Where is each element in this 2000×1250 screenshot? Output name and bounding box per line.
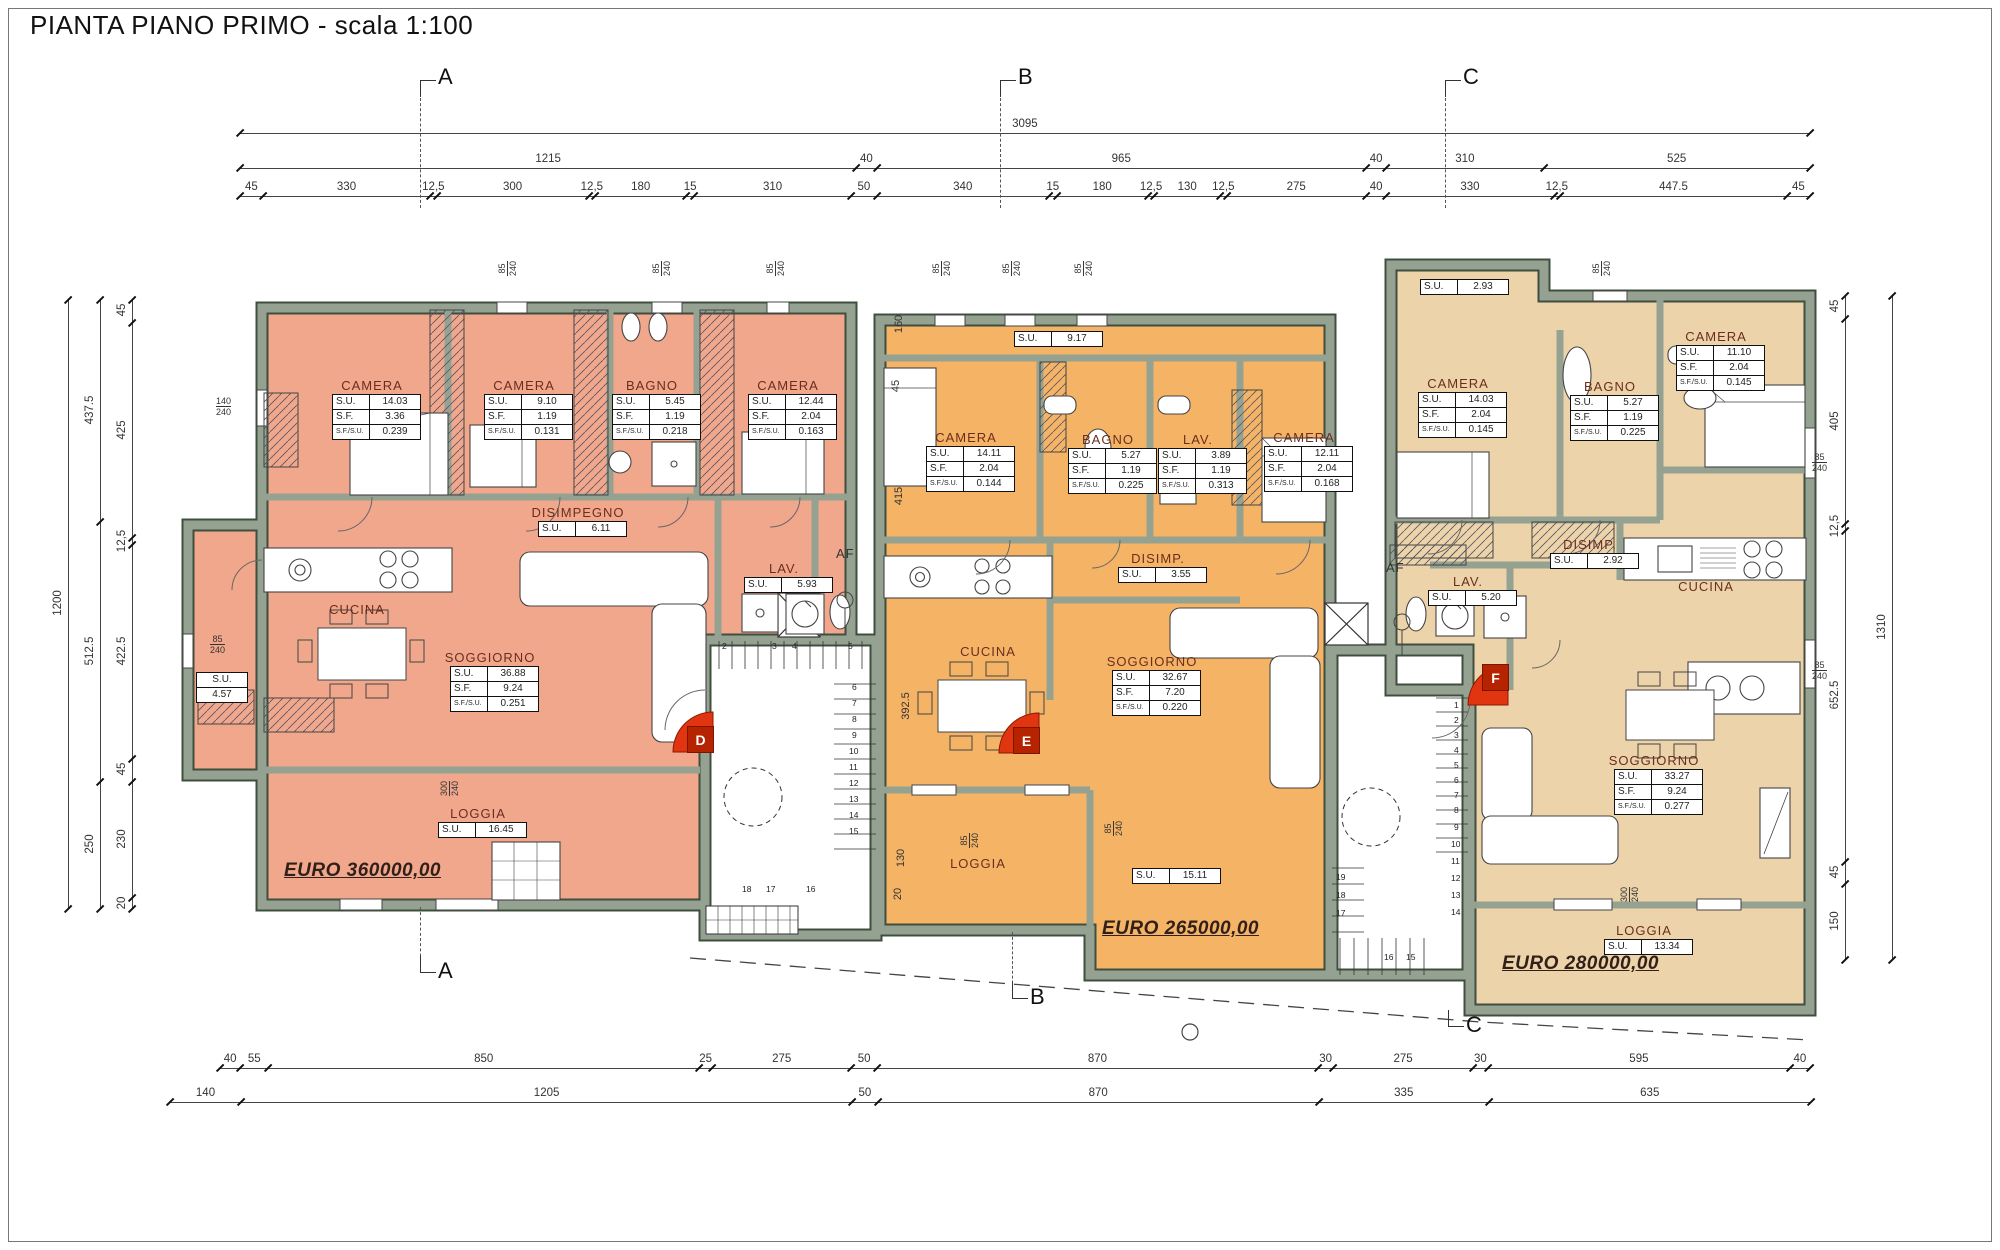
dim-label: 1200 [52, 561, 64, 645]
stair-step-number: 12 [849, 778, 858, 788]
room-name: LAV. [1398, 574, 1538, 589]
section-bracket [1445, 80, 1461, 97]
stair-step-number: 11 [849, 762, 858, 772]
stair-step-number: 13 [849, 794, 858, 804]
dim-line [170, 1102, 1811, 1103]
dim-label: 12,5 [1188, 181, 1258, 193]
section-bracket [420, 80, 436, 97]
section-letter: C [1466, 1012, 1482, 1038]
dim-label: 422.5 [116, 609, 128, 693]
section-line [1000, 98, 1001, 208]
dim-label: 30 [1445, 1053, 1515, 1065]
room-area-table: S.U.9.10S.F.1.19S.F./S.U.0.131 [484, 394, 573, 440]
dim-label: 525 [1642, 153, 1712, 165]
dim-label: 12,5 [1522, 181, 1592, 193]
stair-step-number: 3 [1454, 730, 1459, 740]
interior-dim-label: 415 [893, 487, 905, 505]
door-marker-f: F [1482, 664, 1509, 691]
room-name: CAMERA [454, 378, 594, 393]
room-area-table: S.U.3.55 [1118, 567, 1207, 583]
stair-step-number: 10 [1451, 839, 1460, 849]
room-area-table: S.U.12.11S.F.2.04S.F./S.U.0.168 [1264, 446, 1353, 492]
room-name: DISIMP. [1088, 551, 1228, 566]
room-area-table: S.U.14.03S.F.2.04S.F./S.U.0.145 [1418, 392, 1507, 438]
floor-plan-sheet: PIANTA PIANO PRIMO - scala 1:100 [0, 0, 2000, 1250]
room-name: SOGGIORNO [1082, 654, 1222, 669]
dim-label: 45 [1829, 264, 1841, 348]
stair-step-number: 17 [1336, 908, 1345, 918]
dim-label: 45 [116, 268, 128, 352]
window-dim-label: 85240 [1001, 261, 1022, 276]
section-letter: B [1030, 984, 1045, 1010]
room-area-table: S.U.2.93 [1420, 279, 1509, 295]
stair-step-number: 13 [1451, 890, 1460, 900]
dim-label: 635 [1615, 1087, 1685, 1099]
window-dim-label: 85240 [765, 261, 786, 276]
room-name: CAMERA [1646, 329, 1786, 344]
dim-label: 965 [1086, 153, 1156, 165]
stair-step-number: 6 [852, 682, 857, 692]
window-dim-label: 85240 [210, 634, 225, 655]
interior-dim-label: 392.5 [900, 692, 912, 720]
dim-label: 50 [829, 181, 899, 193]
room-name: CUCINA [918, 644, 1058, 659]
dim-label: 40 [1341, 181, 1411, 193]
dim-line [240, 133, 1810, 134]
stair-step-number: 5 [848, 641, 853, 651]
dim-label: 652.5 [1829, 653, 1841, 737]
dim-line [100, 300, 101, 909]
stair-step-number: 10 [849, 746, 858, 756]
window-dim-label: 85240 [1812, 452, 1827, 473]
room-name: CAMERA [302, 378, 442, 393]
dim-label: 850 [449, 1053, 519, 1065]
window-dim-label: 85240 [1073, 261, 1094, 276]
section-bracket [1448, 1010, 1464, 1027]
room-area-table: S.U.5.27S.F.1.19S.F./S.U.0.225 [1570, 395, 1659, 441]
stair-step-number: 9 [1454, 822, 1459, 832]
room-area-table: S.U.2.92 [1550, 553, 1639, 569]
dim-label: 40 [831, 153, 901, 165]
stair-step-number: 8 [1454, 805, 1459, 815]
dim-label: 275 [747, 1053, 817, 1065]
dim-label: 1205 [512, 1087, 582, 1099]
dim-label: 15 [655, 181, 725, 193]
room-name: BAGNO [582, 378, 722, 393]
dim-label: 425 [116, 388, 128, 472]
stair-step-number: 16 [1384, 952, 1393, 962]
room-area-table: S.U.12.44S.F.2.04S.F./S.U.0.163 [748, 394, 837, 440]
room-area-table: S.U.36.88S.F.9.24S.F./S.U.0.251 [450, 666, 539, 712]
window-dim-label: 85240 [959, 833, 980, 848]
room-area-table: S.U.4.57 [196, 672, 248, 703]
room-area-table: S.U.14.03S.F.3.36S.F./S.U.0.239 [332, 394, 421, 440]
room-name: LOGGIA [408, 806, 548, 821]
window-dim-label: 140240 [216, 396, 231, 417]
dim-label: 340 [928, 181, 998, 193]
stair-step-number: 15 [849, 826, 858, 836]
dim-label: 40 [1341, 153, 1411, 165]
dim-label: 310 [738, 181, 808, 193]
room-area-table: S.U.5.20 [1428, 590, 1517, 606]
storage-label: AF [836, 546, 855, 561]
stair-step-number: 4 [1454, 745, 1459, 755]
dim-label: 30 [1291, 1053, 1361, 1065]
price-label-f: EURO 280000,00 [1502, 953, 1659, 975]
dim-label: 870 [1063, 1087, 1133, 1099]
section-letter: C [1463, 64, 1479, 90]
room-name: LOGGIA [908, 856, 1048, 871]
section-bracket [420, 956, 436, 973]
dim-label: 55 [219, 1053, 289, 1065]
room-name: BAGNO [1540, 379, 1680, 394]
room-name: CAMERA [718, 378, 858, 393]
room-name: CAMERA [1388, 376, 1528, 391]
room-name: DISIMPEGNO [508, 505, 648, 520]
room-area-table: S.U.11.10S.F.2.04S.F./S.U.0.145 [1676, 345, 1765, 391]
dim-label: 45 [216, 181, 286, 193]
stair-step-number: 7 [1454, 790, 1459, 800]
room-area-table: S.U.5.93 [744, 577, 833, 593]
dim-label: 437.5 [84, 368, 96, 452]
room-area-table: S.U.33.27S.F.9.24S.F./S.U.0.277 [1614, 769, 1703, 815]
window-dim-label: 85240 [1812, 660, 1827, 681]
dim-line [220, 1068, 1810, 1069]
dim-line [68, 300, 69, 909]
stair-step-number: 4 [792, 641, 797, 651]
dim-label: 300 [478, 181, 548, 193]
dim-label: 12,5 [1829, 484, 1841, 568]
room-area-table: S.U.5.45S.F.1.19S.F./S.U.0.218 [612, 394, 701, 440]
room-name: SOGGIORNO [1584, 753, 1724, 768]
dim-label: 40 [1765, 1053, 1835, 1065]
stair-step-number: 15 [1406, 952, 1415, 962]
stair-step-number: 2 [1454, 715, 1459, 725]
room-name: CAMERA [896, 430, 1036, 445]
window-dim-label: 85240 [931, 261, 952, 276]
window-dim-label: 85240 [1591, 261, 1612, 276]
dim-label: 512.5 [84, 609, 96, 693]
dim-label: 20 [116, 861, 128, 945]
section-letter: A [438, 64, 453, 90]
room-name: LOGGIA [1574, 923, 1714, 938]
interior-dim-label: 130 [895, 849, 907, 867]
interior-dim-label: 20 [892, 888, 904, 900]
stair-step-number: 8 [852, 714, 857, 724]
dim-label: 150 [1829, 879, 1841, 963]
dim-label: 405 [1829, 379, 1841, 463]
window-dim-label: 85240 [1103, 821, 1124, 836]
room-area-table: S.U.9.17 [1014, 331, 1103, 347]
stair-step-number: 1 [1454, 700, 1459, 710]
dim-label: 250 [84, 802, 96, 886]
room-name: CUCINA [287, 602, 427, 617]
dim-label: 595 [1604, 1053, 1674, 1065]
stair-step-number: 7 [852, 698, 857, 708]
room-area-table: S.U.14.11S.F.2.04S.F./S.U.0.144 [926, 446, 1015, 492]
dim-line [240, 168, 1810, 169]
stair-step-number: 12 [1451, 873, 1460, 883]
dim-label: 275 [1368, 1053, 1438, 1065]
dim-line [132, 300, 133, 909]
dim-label: 275 [1261, 181, 1331, 193]
interior-dim-label: 45 [890, 380, 902, 392]
dim-label: 12,5 [398, 181, 468, 193]
window-dim-label: 85240 [651, 261, 672, 276]
section-bracket [1000, 80, 1016, 97]
section-bracket [1012, 982, 1028, 999]
dim-label: 1310 [1876, 585, 1888, 669]
section-letter: A [438, 958, 453, 984]
dim-label: 50 [829, 1053, 899, 1065]
stair-step-number: 14 [1451, 907, 1460, 917]
dim-label: 335 [1369, 1087, 1439, 1099]
stair-step-number: 14 [849, 810, 858, 820]
stair-step-number: 3 [772, 641, 777, 651]
room-area-table: S.U.6.11 [538, 521, 627, 537]
stair-step-number: 18 [1336, 890, 1345, 900]
stair-step-number: 2 [722, 641, 727, 651]
door-marker-e: E [1013, 727, 1040, 754]
dim-label: 50 [830, 1087, 900, 1099]
dim-label: 330 [312, 181, 382, 193]
stair-step-number: 18 [742, 884, 751, 894]
dim-label: 25 [671, 1053, 741, 1065]
section-line [1445, 98, 1446, 208]
dim-label: 1215 [513, 153, 583, 165]
dim-label: 870 [1062, 1053, 1132, 1065]
dim-label: 447.5 [1638, 181, 1708, 193]
section-letter: B [1018, 64, 1033, 90]
dim-label: 45 [1763, 181, 1833, 193]
stair-step-number: 19 [1336, 872, 1345, 882]
room-name: LAV. [714, 561, 854, 576]
dim-label: 140 [171, 1087, 241, 1099]
stair-step-number: 16 [806, 884, 815, 894]
price-label-e: EURO 265000,00 [1102, 918, 1259, 940]
section-line [420, 98, 421, 208]
room-area-table: S.U.13.34 [1604, 939, 1693, 955]
window-dim-label: 85240 [497, 261, 518, 276]
window-dim-label: 300240 [439, 781, 460, 796]
stair-step-number: 11 [1451, 856, 1460, 866]
price-label-d: EURO 360000,00 [284, 860, 441, 882]
window-dim-label: 300240 [1619, 887, 1640, 902]
room-area-table: S.U.3.89S.F.1.19S.F./S.U.0.313 [1158, 448, 1247, 494]
room-name: CUCINA [1636, 579, 1776, 594]
stair-step-number: 5 [1454, 760, 1459, 770]
stair-step-number: 9 [852, 730, 857, 740]
room-area-table: S.U.32.67S.F.7.20S.F./S.U.0.220 [1112, 670, 1201, 716]
room-name: SOGGIORNO [420, 650, 560, 665]
storage-label: AF [1386, 560, 1405, 575]
room-area-table: S.U.15.11 [1132, 868, 1221, 884]
dim-line [240, 196, 1810, 197]
room-name: CAMERA [1234, 430, 1374, 445]
stair-step-number: 17 [766, 884, 775, 894]
interior-dim-label: 160 [893, 315, 905, 333]
room-area-table: S.U.5.27S.F.1.19S.F./S.U.0.225 [1068, 448, 1157, 494]
room-area-table: S.U.16.45 [438, 822, 527, 838]
dim-label: 310 [1430, 153, 1500, 165]
dim-label: 12,5 [116, 499, 128, 583]
door-marker-d: D [687, 726, 714, 753]
dim-line [1892, 296, 1893, 960]
room-name: DISIMP. [1520, 537, 1660, 552]
stair-step-number: 6 [1454, 775, 1459, 785]
